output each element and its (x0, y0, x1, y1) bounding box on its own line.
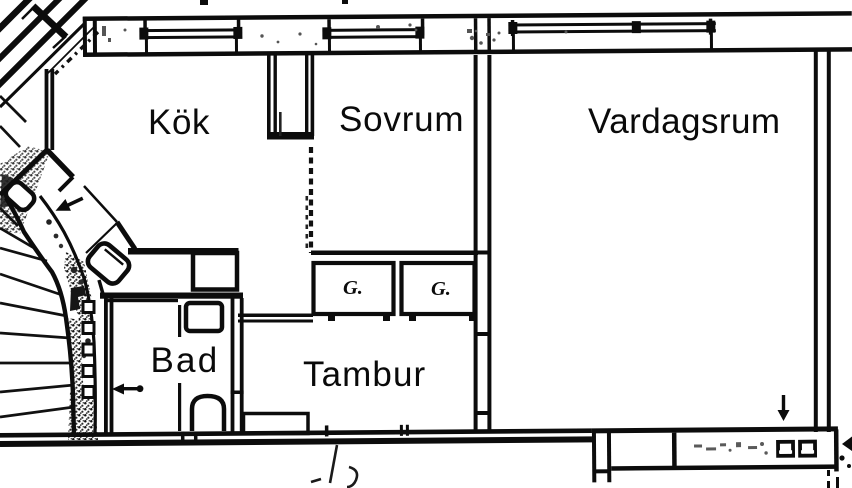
svg-text:Sovrum: Sovrum (339, 100, 464, 139)
svg-text:Vardagsrum: Vardagsrum (588, 102, 781, 141)
svg-text:Kök: Kök (148, 103, 210, 142)
svg-text:G.: G. (431, 278, 451, 300)
svg-text:Bad: Bad (151, 341, 220, 380)
svg-text:G.: G. (343, 277, 363, 299)
svg-text:Tambur: Tambur (303, 355, 426, 394)
